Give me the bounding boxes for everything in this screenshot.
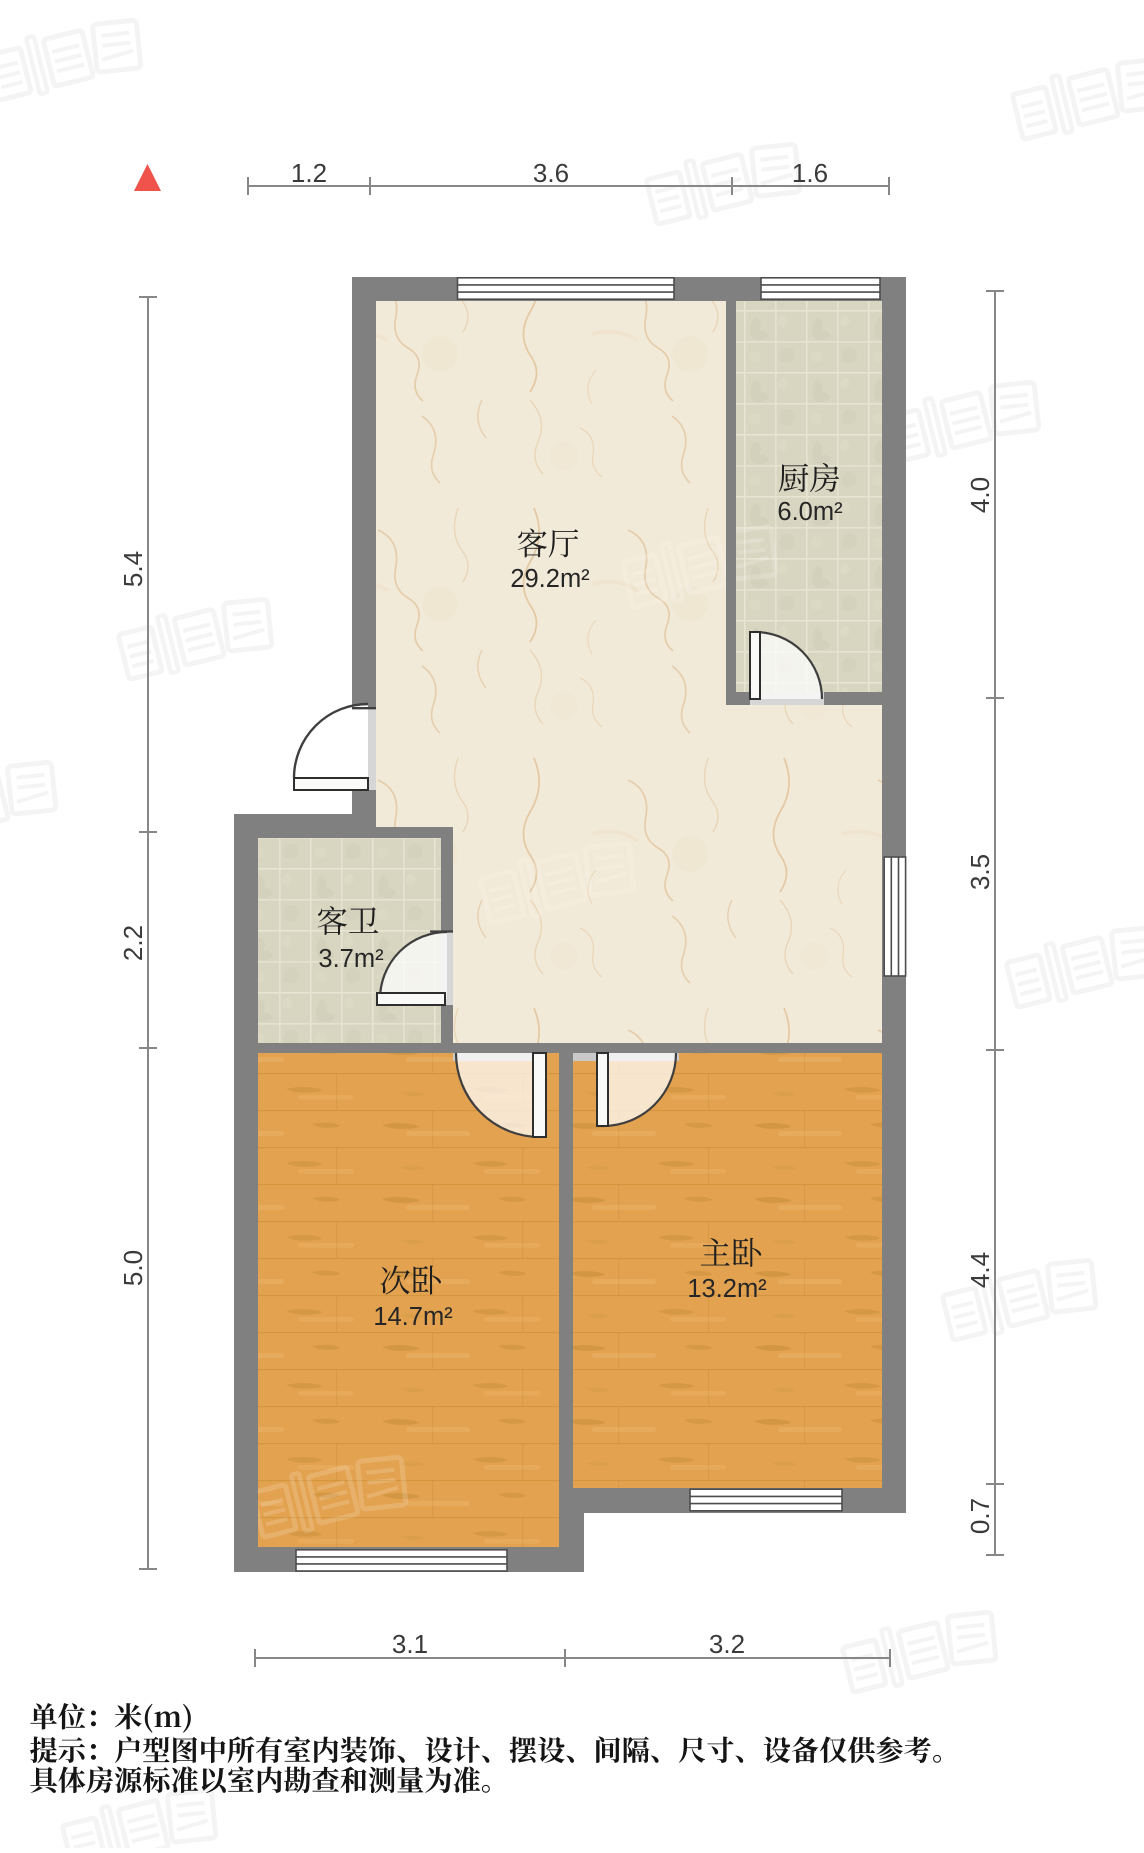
svg-text:5.4: 5.4 — [118, 551, 148, 587]
svg-text:3.1: 3.1 — [392, 1629, 428, 1659]
svg-text:1.6: 1.6 — [792, 158, 828, 188]
svg-text:3.7m²: 3.7m² — [318, 945, 383, 973]
svg-text:3.5: 3.5 — [965, 854, 995, 890]
svg-text:29.2m²: 29.2m² — [510, 565, 589, 593]
svg-text:5.0: 5.0 — [118, 1250, 148, 1286]
svg-text:3.2: 3.2 — [709, 1629, 745, 1659]
svg-text:2.2: 2.2 — [118, 925, 148, 961]
svg-text:1.2: 1.2 — [291, 158, 327, 188]
svg-text:13.2m²: 13.2m² — [687, 1275, 766, 1303]
svg-text:4.4: 4.4 — [965, 1252, 995, 1288]
svg-text:4.0: 4.0 — [965, 477, 995, 513]
svg-text:14.7m²: 14.7m² — [373, 1303, 452, 1331]
svg-text:3.6: 3.6 — [533, 158, 569, 188]
svg-text:6.0m²: 6.0m² — [777, 498, 842, 526]
svg-text:0.7: 0.7 — [965, 1498, 995, 1534]
